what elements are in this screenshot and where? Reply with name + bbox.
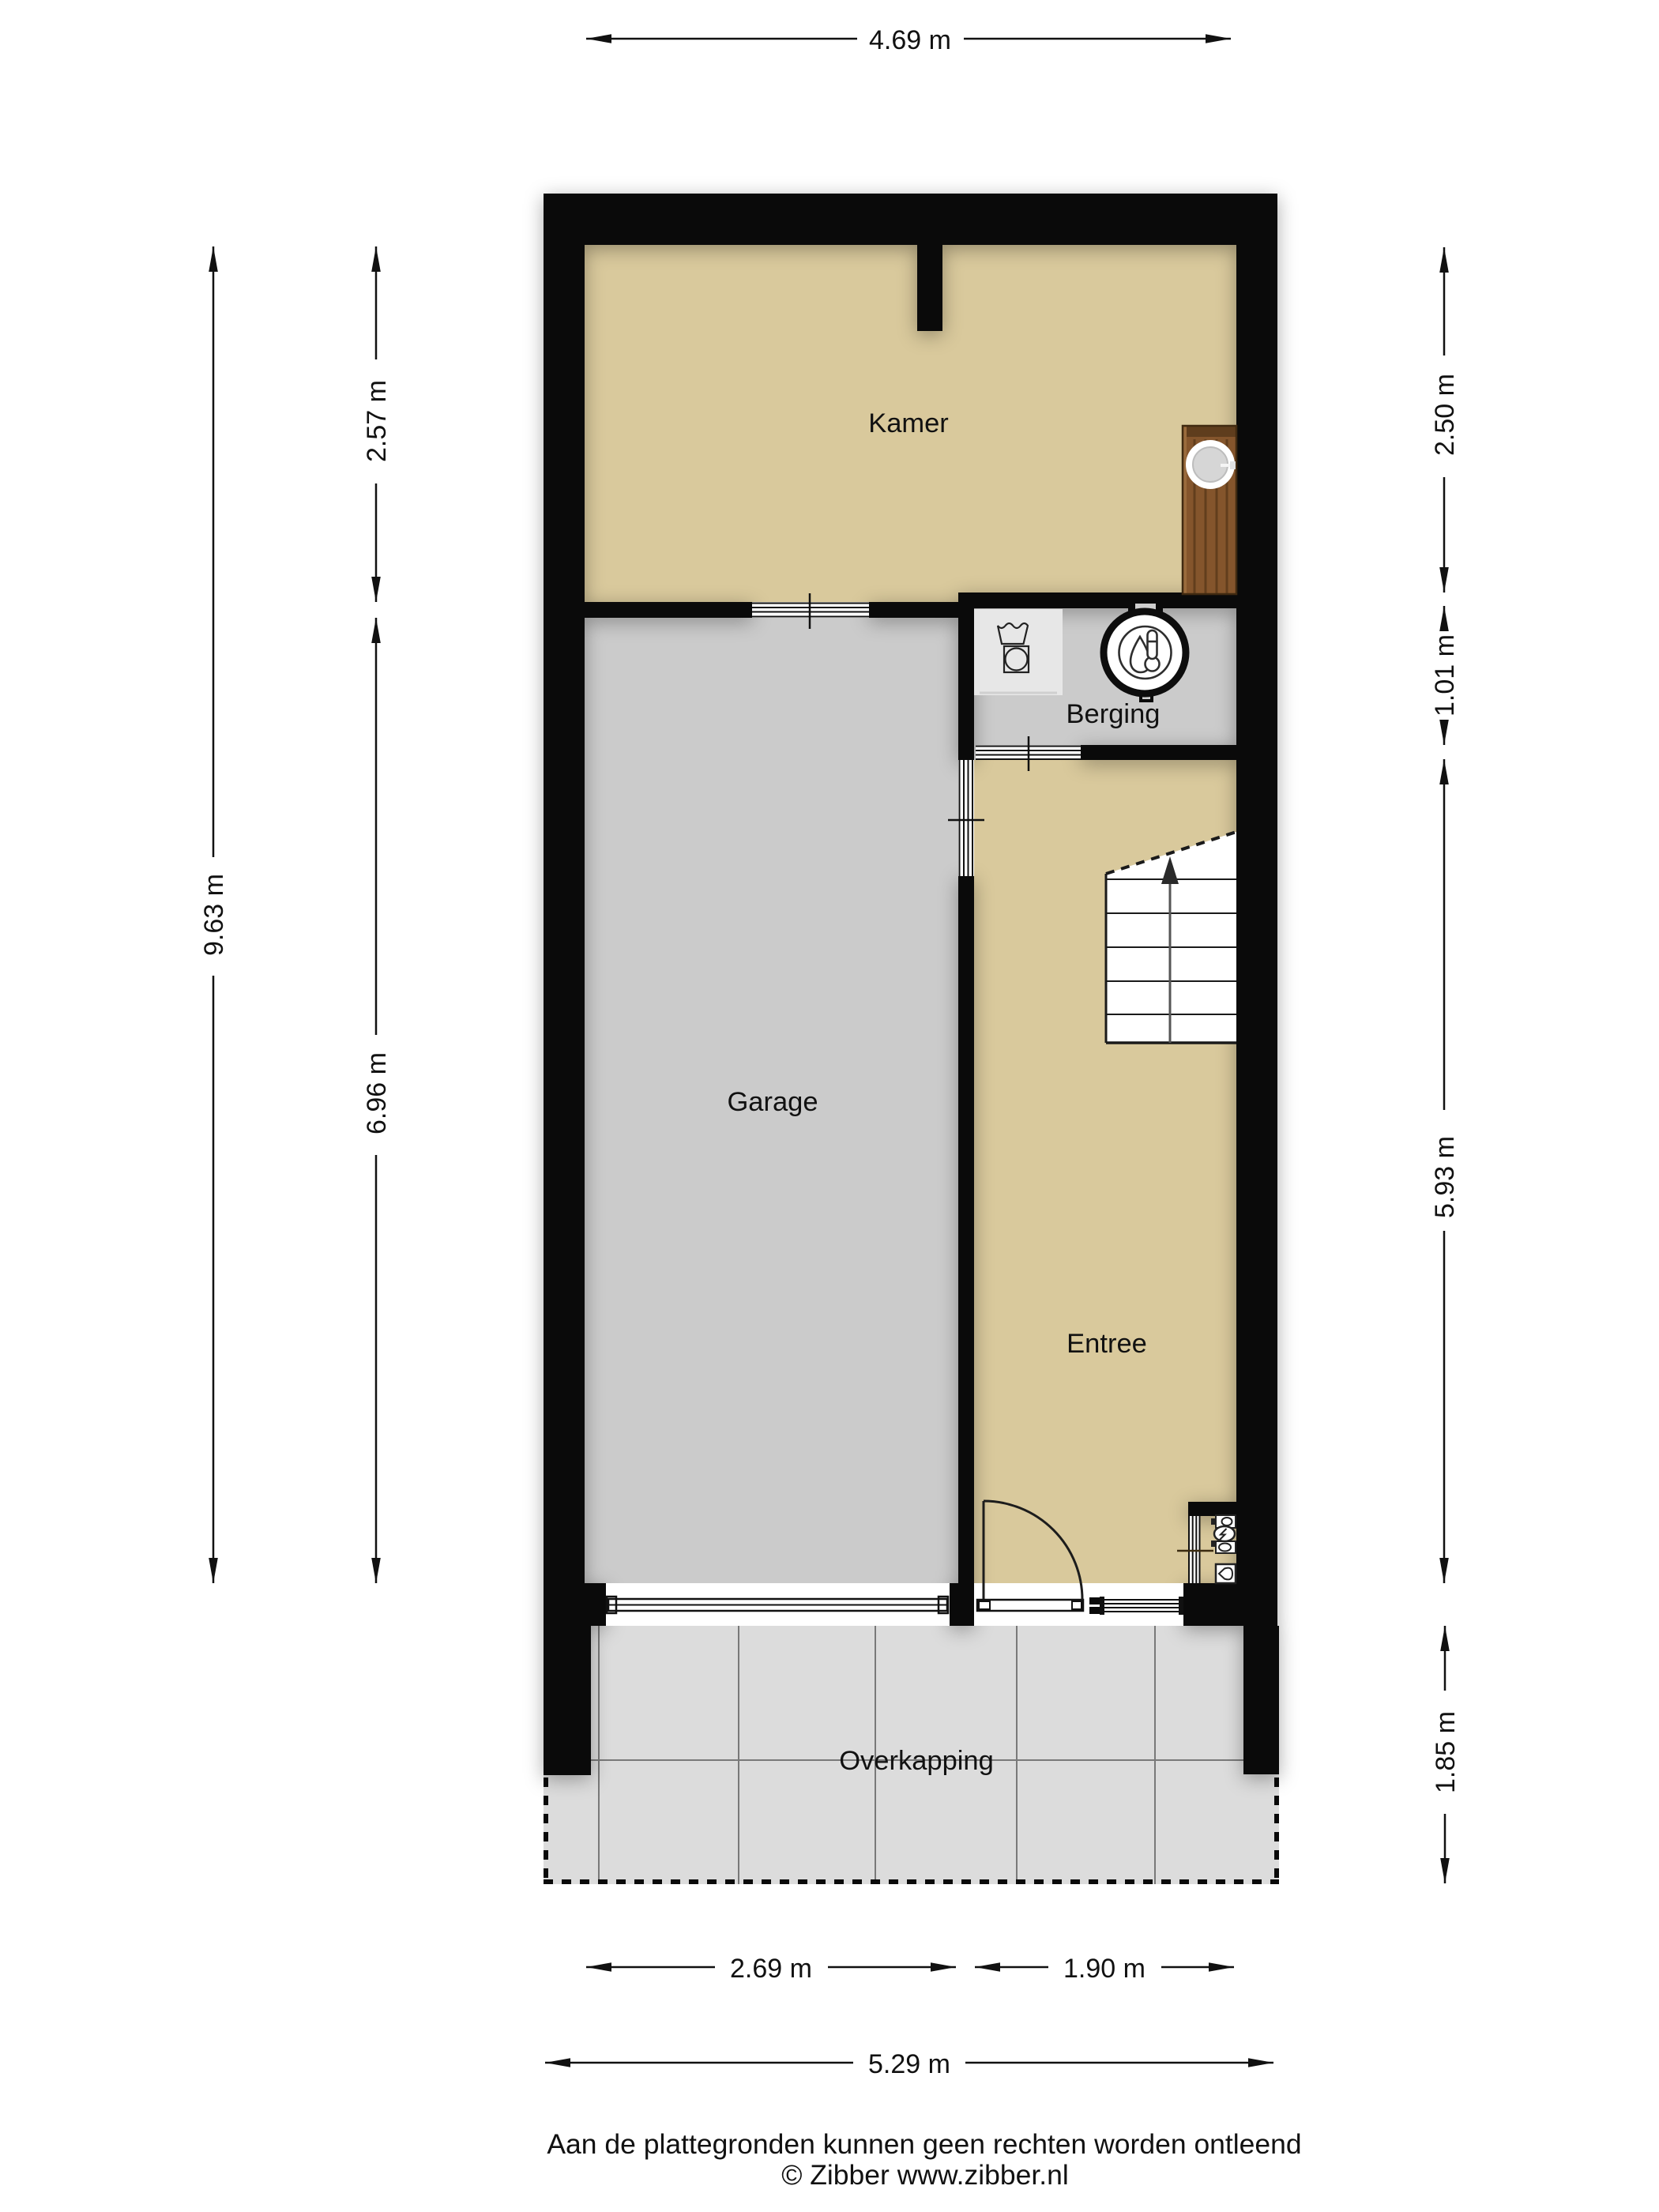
svg-text:6.96 m: 6.96 m <box>362 1052 392 1134</box>
svg-text:1.90 m: 1.90 m <box>1063 1954 1145 1984</box>
svg-text:Garage: Garage <box>727 1087 818 1117</box>
svg-text:5.29 m: 5.29 m <box>868 2049 950 2079</box>
svg-text:Overkapping: Overkapping <box>839 1746 994 1776</box>
svg-text:Aan de plattegronden kunnen ge: Aan de plattegronden kunnen geen rechten… <box>547 2128 1301 2160</box>
svg-text:Kamer: Kamer <box>868 408 949 438</box>
svg-text:2.57 m: 2.57 m <box>362 380 392 462</box>
svg-text:© Zibber www.zibber.nl: © Zibber www.zibber.nl <box>781 2159 1069 2191</box>
svg-text:1.85 m: 1.85 m <box>1431 1711 1461 1793</box>
svg-text:Entree: Entree <box>1066 1329 1147 1359</box>
svg-text:Berging: Berging <box>1066 699 1161 729</box>
svg-text:2.69 m: 2.69 m <box>730 1954 812 1984</box>
svg-text:9.63 m: 9.63 m <box>199 874 229 956</box>
svg-text:1.01 m: 1.01 m <box>1430 634 1460 717</box>
svg-text:2.50 m: 2.50 m <box>1430 374 1460 456</box>
svg-text:5.93 m: 5.93 m <box>1430 1136 1460 1218</box>
svg-text:4.69 m: 4.69 m <box>869 25 951 55</box>
